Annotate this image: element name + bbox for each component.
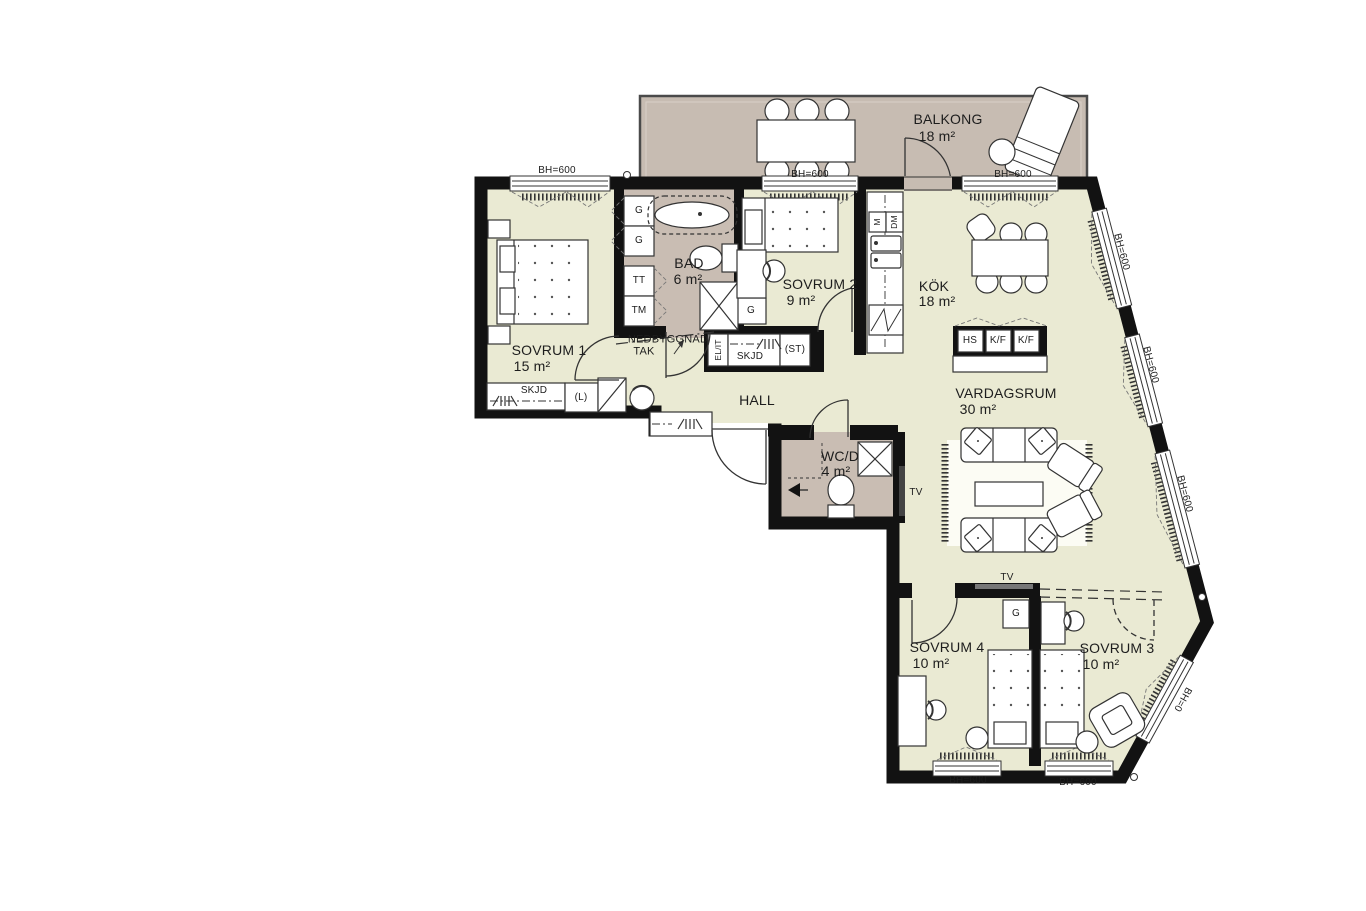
bh600-label-8: BH=600 <box>1059 778 1097 788</box>
stool <box>966 727 988 749</box>
closet-label-g2: G <box>635 236 643 246</box>
dryer-label: TT <box>633 276 646 286</box>
room-label-balkong: BALKONG <box>913 112 982 126</box>
st-closet-label: (ST) <box>785 345 805 355</box>
wardrobe-label-skjd2: SKJD <box>737 352 763 362</box>
floorplan-drawing <box>0 0 1366 911</box>
area-label-sovrum3: 10 m² <box>1083 657 1120 671</box>
toilet-tank <box>722 244 738 272</box>
fridge-label-2: K/F <box>1018 336 1034 346</box>
bh600-label-2: BH=600 <box>791 170 829 180</box>
area-label-kok: 18 m² <box>919 294 956 308</box>
area-label-vardagsrum: 30 m² <box>960 402 997 416</box>
dishwasher-label: DM <box>890 215 899 229</box>
nightstand <box>488 220 510 238</box>
el-it-label: EL/IT <box>714 339 723 360</box>
room-label-sovrum2: SOVRUM 2 <box>783 277 858 291</box>
bh600-label-1: BH=600 <box>538 166 576 176</box>
area-label-wcd: 4 m² <box>822 464 851 478</box>
lowered-ceiling-label-2: TAK <box>633 347 654 358</box>
closet-label-g1: G <box>635 206 643 216</box>
area-label-sovrum2: 9 m² <box>787 293 816 307</box>
closet-label-g3: G <box>747 306 755 316</box>
coffee-table <box>975 482 1043 506</box>
stool <box>1076 731 1098 753</box>
kitchen-table <box>972 240 1048 276</box>
area-label-bad: 6 m² <box>674 272 703 286</box>
floor-plan: BALKONG 18 m² SOVRUM 1 15 m² BAD 6 m² SO… <box>0 0 1366 911</box>
room-label-bad: BAD <box>674 256 703 270</box>
room-label-sovrum1: SOVRUM 1 <box>512 343 587 357</box>
washer-label: TM <box>632 306 647 316</box>
nightstand <box>488 326 510 344</box>
lowered-ceiling-label-1: NEDBYGGNAD <box>628 335 708 346</box>
fridge-label-1: K/F <box>990 336 1006 346</box>
room-label-sovrum4: SOVRUM 4 <box>910 640 985 654</box>
desk <box>1041 602 1065 644</box>
desk <box>898 676 926 746</box>
cabinet-label-hs: HS <box>963 336 977 346</box>
wardrobe-label-skjd1: SKJD <box>521 386 547 396</box>
area-label-balkong: 18 m² <box>919 129 956 143</box>
room-label-sovrum3: SOVRUM 3 <box>1080 641 1155 655</box>
tv-bottom <box>975 584 1033 589</box>
bh600-label-3: BH=600 <box>994 170 1032 180</box>
linen-closet-label: (L) <box>575 393 588 403</box>
room-label-hall: HALL <box>739 393 775 407</box>
bh600-label-7: BH=600 <box>949 776 987 786</box>
closet-label-g4: G <box>1012 609 1020 619</box>
balcony-side-table <box>989 139 1015 165</box>
wc-toilet <box>828 475 854 505</box>
room-label-kok: KÖK <box>919 279 949 293</box>
microwave-label: M <box>873 218 882 225</box>
room-label-vardagsrum: VARDAGSRUM <box>955 386 1056 400</box>
desk <box>737 250 766 298</box>
room-label-wcd: WC/D <box>821 449 859 463</box>
area-label-sovrum4: 10 m² <box>913 656 950 670</box>
tv-label-2: TV <box>1000 573 1013 583</box>
tv-wall-mounted <box>899 466 905 516</box>
area-label-sovrum1: 15 m² <box>514 359 551 373</box>
tv-label-1: TV <box>909 488 922 498</box>
